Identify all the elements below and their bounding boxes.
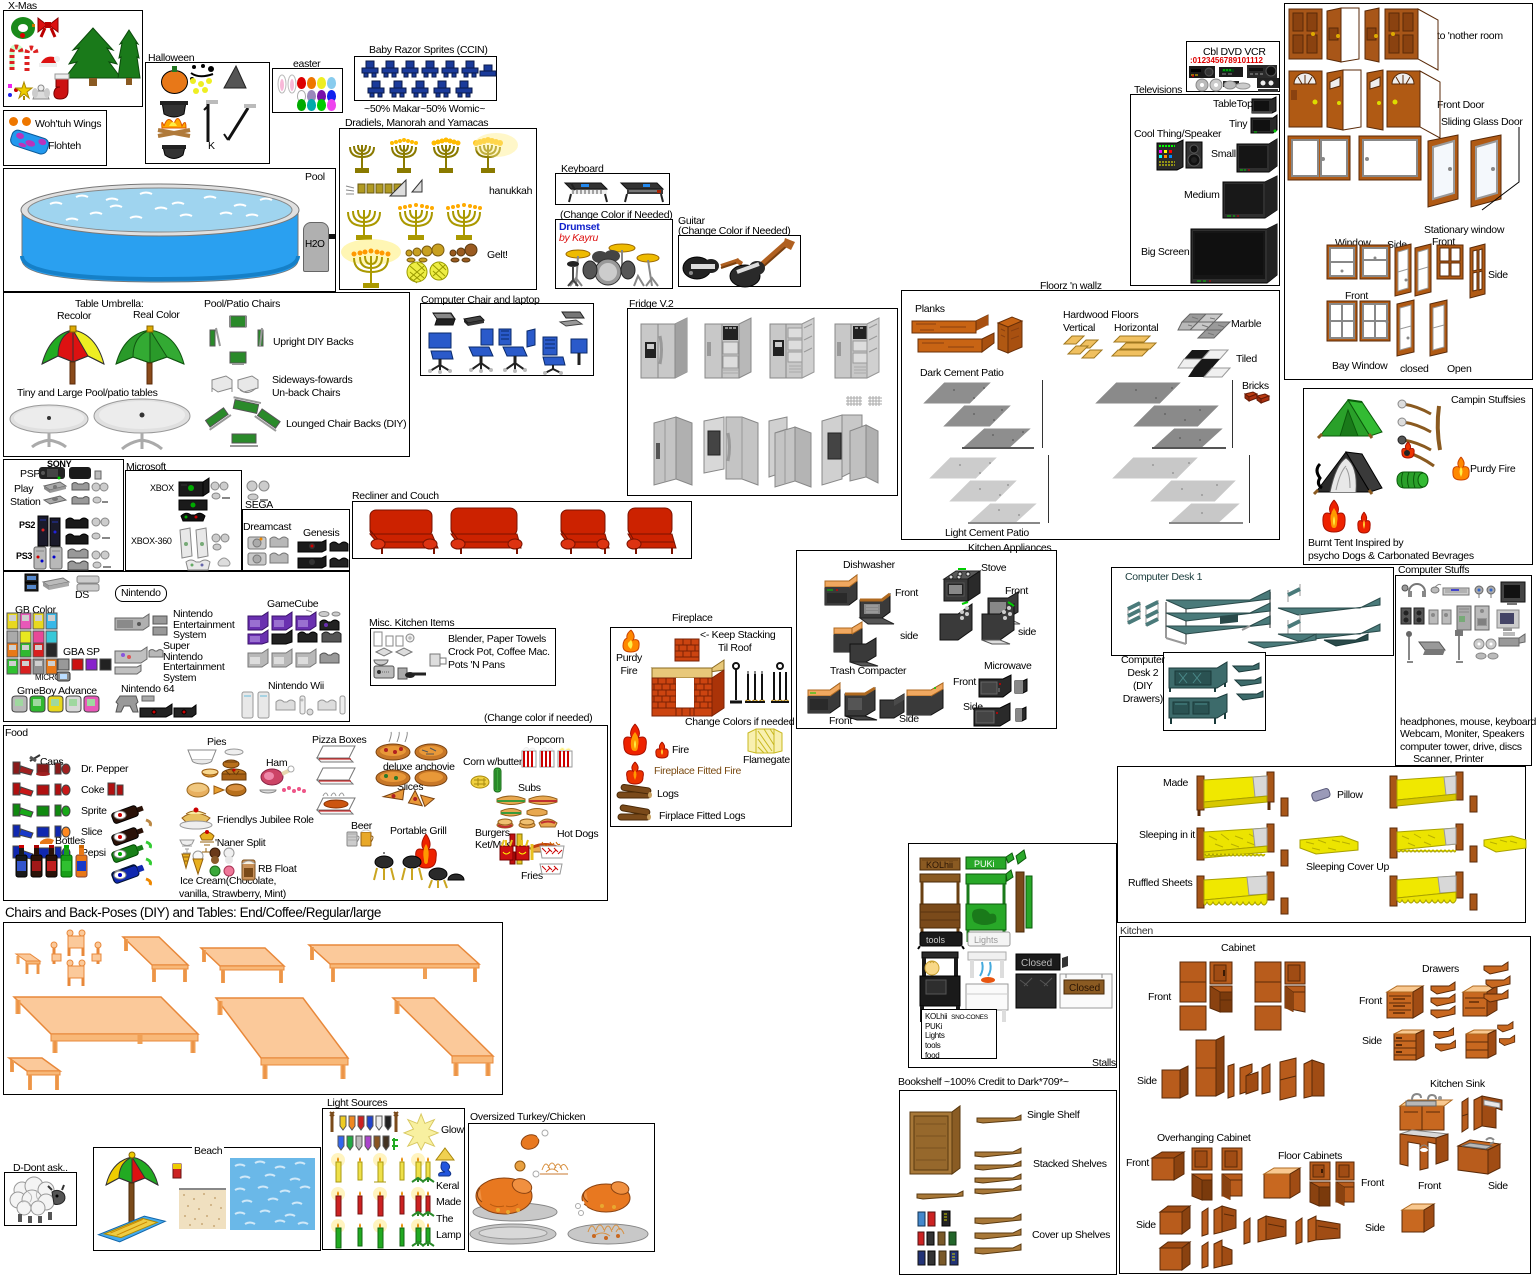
svg-text:Closed: Closed — [1021, 958, 1052, 969]
svg-text:Closed: Closed — [1069, 983, 1100, 994]
svg-text:KOLhii: KOLhii — [926, 860, 953, 870]
svg-text:tools: tools — [926, 935, 946, 945]
svg-text:Lights: Lights — [974, 935, 999, 945]
svg-text:PUKi: PUKi — [974, 859, 995, 869]
